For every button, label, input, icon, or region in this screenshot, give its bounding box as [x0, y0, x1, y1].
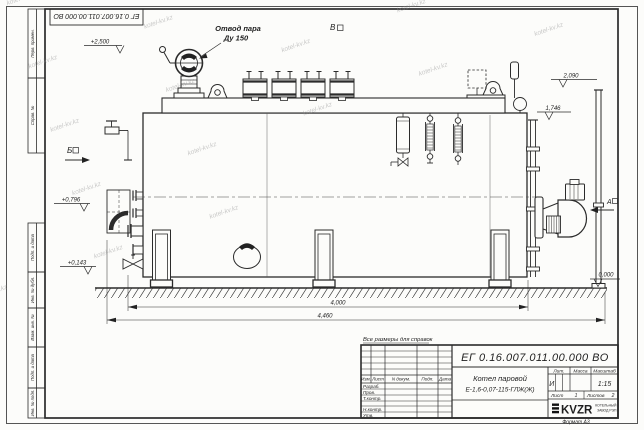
elevation-low: +0,143 [68, 261, 87, 267]
elevation-steam-valve: +2,500 [91, 40, 110, 46]
dim-base-length: 4,000 [330, 301, 346, 307]
role-tcontrol: Т.контр. [363, 396, 382, 401]
top-casing [162, 98, 505, 113]
scale-value: 1:15 [598, 381, 612, 388]
elevation-ground: 0,000 [598, 273, 614, 279]
view-label-left: Б [65, 146, 90, 163]
sheet-label: Лист [550, 393, 563, 399]
steam-outlet-callout: Отвод пара Ду 150 [199, 24, 261, 59]
col-izm: Изм. [361, 377, 371, 382]
boiler-body [133, 95, 537, 277]
col-list: Лист [371, 377, 384, 382]
mass-label: Масса [573, 369, 588, 375]
lit-value: И [549, 381, 555, 388]
product-title: Котел паровой [473, 374, 528, 383]
sheets-label: Листов [586, 393, 605, 399]
sheet-value: 1 [575, 393, 578, 399]
role-developed: Разраб. [363, 384, 380, 389]
boiler-shell [143, 113, 527, 277]
margin-label: Инв. № дубл. [30, 277, 35, 303]
doc-number: ЕГ 0.16.007.011.00.000 ВО [461, 352, 609, 364]
elevation-chimney-top: 2,090 [562, 74, 579, 80]
dim-overall-length: 4,460 [317, 314, 333, 320]
col-date: Дата [438, 377, 452, 382]
margin-label: Перв. примен. [30, 29, 35, 58]
company-line2: ЗАВОД РЭП [597, 409, 617, 413]
view-label-top: В [330, 23, 343, 32]
callout-line2: Ду 150 [223, 34, 249, 43]
top-doc-number: ЕГ 0.16.007.011.00.000 ВО [53, 12, 140, 19]
engineering-drawing-canvas: Перв. примен. Справ. № Подп. и дата Инв.… [0, 0, 644, 430]
company-logo: KVZR КОТЕЛЬНЫЙ ЗАВОД РЭП [552, 404, 617, 417]
company-logo-text: KVZR [561, 405, 593, 417]
view-letter-v: В [330, 23, 336, 32]
role-checked: Пров. [363, 390, 375, 395]
sheets-value: 2 [611, 393, 615, 399]
role-approved: Утв. [363, 413, 373, 418]
format-label: Формат А3 [562, 419, 590, 425]
flue-elbow [107, 190, 130, 233]
company-line1: КОТЕЛЬНЫЙ [595, 404, 617, 408]
chimney [592, 90, 605, 288]
callout-line1: Отвод пара [215, 24, 261, 33]
margin-label: Инв. № подл. [30, 390, 35, 417]
drawing-sheet: Перв. примен. Справ. № Подп. и дата Инв.… [0, 0, 644, 430]
elevation-mid: +0,796 [62, 198, 81, 204]
safety-valves [243, 72, 354, 101]
steam-outlet-valve [160, 47, 205, 99]
burner [535, 180, 587, 239]
lit-label: Лит. [552, 369, 564, 375]
margin-label: Подп. и дата [30, 353, 35, 381]
elevation-flue: 1,746 [545, 106, 561, 112]
control-cabinet [468, 70, 486, 95]
ground [95, 288, 607, 298]
reference-note: Все размеры для справок [363, 337, 433, 343]
col-podp: Подп. [421, 377, 433, 382]
role-ncontrol: Н.контр. [363, 407, 382, 412]
margin-label: Подп. и дата [30, 233, 35, 261]
scale-label: Масштаб [593, 369, 616, 375]
margin-label: Справ. № [30, 105, 35, 125]
margin-label: Взам. инв. № [30, 314, 35, 341]
view-letter-a: А [606, 199, 612, 206]
view-letter-b: Б [67, 146, 72, 155]
pressure-gauge-siphon [511, 62, 527, 113]
product-model: Е-1,6-0,07-115-ГЛЖ(Ж) [465, 387, 534, 394]
col-ndoc: N докум. [392, 377, 411, 382]
